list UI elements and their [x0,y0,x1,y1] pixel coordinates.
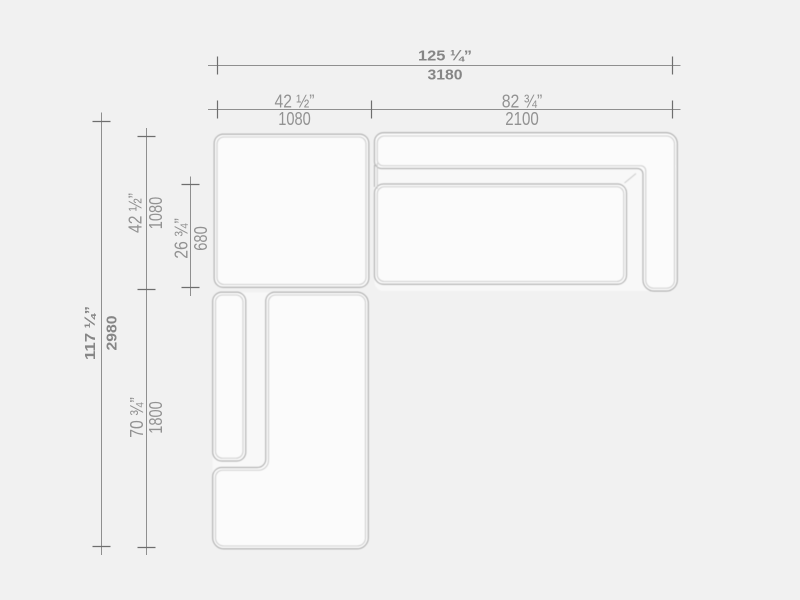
svg-text:42 ½”: 42 ½” [126,193,146,233]
svg-text:70 ¾”: 70 ¾” [127,397,147,438]
svg-text:1080: 1080 [278,109,311,129]
svg-text:125 ¼”: 125 ¼” [418,48,472,65]
svg-text:2980: 2980 [104,316,121,351]
svg-text:117 ¼”: 117 ¼” [82,306,99,360]
svg-text:2100: 2100 [505,109,539,129]
svg-text:1800: 1800 [146,401,166,434]
svg-text:3180: 3180 [428,67,463,84]
svg-text:1080: 1080 [146,197,166,230]
svg-text:680: 680 [191,226,211,251]
svg-text:26 ¾”: 26 ¾” [172,218,192,259]
